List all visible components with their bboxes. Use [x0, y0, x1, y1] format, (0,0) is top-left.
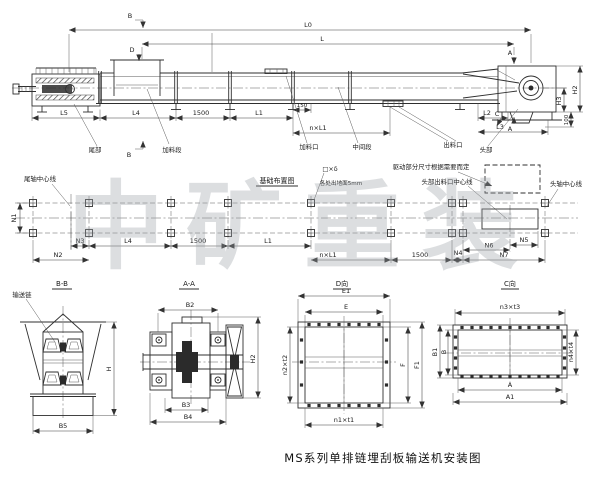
dim-l0-label: L0 — [304, 21, 312, 29]
dim-l3-label: L3 — [496, 123, 504, 131]
section-mark-b-bottom-flag — [135, 141, 143, 149]
view-c: C向 n3×t3 B1 B n4×t4 A A1 — [431, 279, 579, 405]
dim-n2t2-label: n2×t2 — [281, 355, 289, 375]
drawing-title: MS系列单排链埋刮板输送机安装图 — [284, 451, 481, 465]
installation-drawing: B B D A A C L0 L L5 L4 1500 L1 150 n×L1 … — [0, 0, 600, 478]
dim-f1-label: F1 — [413, 361, 421, 369]
section-aa: A-A B2 H2 B3 B4 — [140, 280, 261, 425]
dim-l4-label: L4 — [132, 109, 140, 117]
label-middle-section: 中间段 — [352, 142, 372, 151]
dim-n4t4-label: n4×t4 — [567, 342, 575, 362]
dim-100-label: 100 — [564, 114, 570, 125]
dim-h-label: H — [105, 366, 113, 371]
label-drive-note: 驱动部分尺寸根据需要而定 — [393, 162, 470, 171]
dim-1500-label: 1500 — [193, 109, 210, 117]
section-mark-c: C — [495, 110, 500, 118]
dim-b-label: B — [440, 350, 448, 354]
dim-a1-label: A1 — [506, 393, 515, 401]
dim-h3-label: H3 — [555, 96, 563, 105]
label-feed-section: 加料段 — [162, 145, 182, 154]
label-tail: 尾部 — [89, 145, 102, 154]
dim-h2-label: H2 — [571, 85, 579, 94]
dim-n3t3-label: n3×t3 — [500, 303, 520, 311]
dim-l5-label: L5 — [60, 109, 68, 117]
watermark: 中矿重装 — [68, 171, 540, 283]
dim-b1-label: B1 — [431, 348, 439, 357]
dim-l2-label: L2 — [483, 109, 491, 117]
view-d: D向 E1 E n2×t2 F F1 n1×t1 — [281, 279, 425, 428]
label-conveyor-chain: 输送链 — [12, 290, 32, 299]
dim-n2-label: N2 — [54, 251, 63, 259]
dim-e1-label: E1 — [342, 287, 350, 295]
section-bb: B-B 输送链 H B5 — [12, 280, 117, 434]
dim-n1t1-label: n1×t1 — [334, 416, 354, 424]
dim-l-label: L — [320, 35, 324, 43]
label-discharge-outlet: 出料口 — [443, 140, 462, 149]
view-mark-d: D — [129, 46, 134, 54]
label-tail-axis: 尾轴中心线 — [24, 174, 57, 183]
dim-b4-label: B4 — [184, 413, 193, 421]
dim-e-label: E — [344, 303, 348, 311]
tension-screw-end — [13, 84, 19, 94]
section-mark-b-top: B — [128, 12, 132, 20]
section-mark-b-top-flag — [135, 20, 143, 28]
tail-unit — [13, 68, 100, 112]
section-bb-title: B-B — [56, 280, 68, 288]
dim-f-label: F — [399, 363, 407, 367]
discharge-chute — [510, 112, 533, 123]
section-mark-a-top: A — [508, 49, 513, 57]
section-mark-b-bottom: B — [127, 151, 131, 159]
dim-b3-label: B3 — [182, 401, 191, 409]
dim-l1-label: L1 — [255, 109, 263, 117]
dim-aa-h2-label: H2 — [249, 354, 257, 363]
dim-b5-label: B5 — [59, 422, 68, 430]
feed-hopper — [110, 60, 164, 96]
label-feed-inlet: 加料口 — [299, 142, 318, 151]
dim-b2-label: B2 — [186, 301, 195, 309]
side-view: B B D A A C L0 L L5 L4 1500 L1 150 n×L1 … — [12, 12, 583, 159]
label-head: 头部 — [480, 145, 493, 154]
label-head-axis: 头轴中心线 — [550, 179, 583, 188]
dim-n1-label: N1 — [10, 214, 18, 223]
dim-nxl1-label: n×L1 — [309, 124, 326, 132]
drawing-canvas: B B D A A C L0 L L5 L4 1500 L1 150 n×L1 … — [0, 0, 600, 478]
dim-a-label: A — [508, 381, 513, 389]
dim-150-label: 150 — [297, 103, 308, 109]
